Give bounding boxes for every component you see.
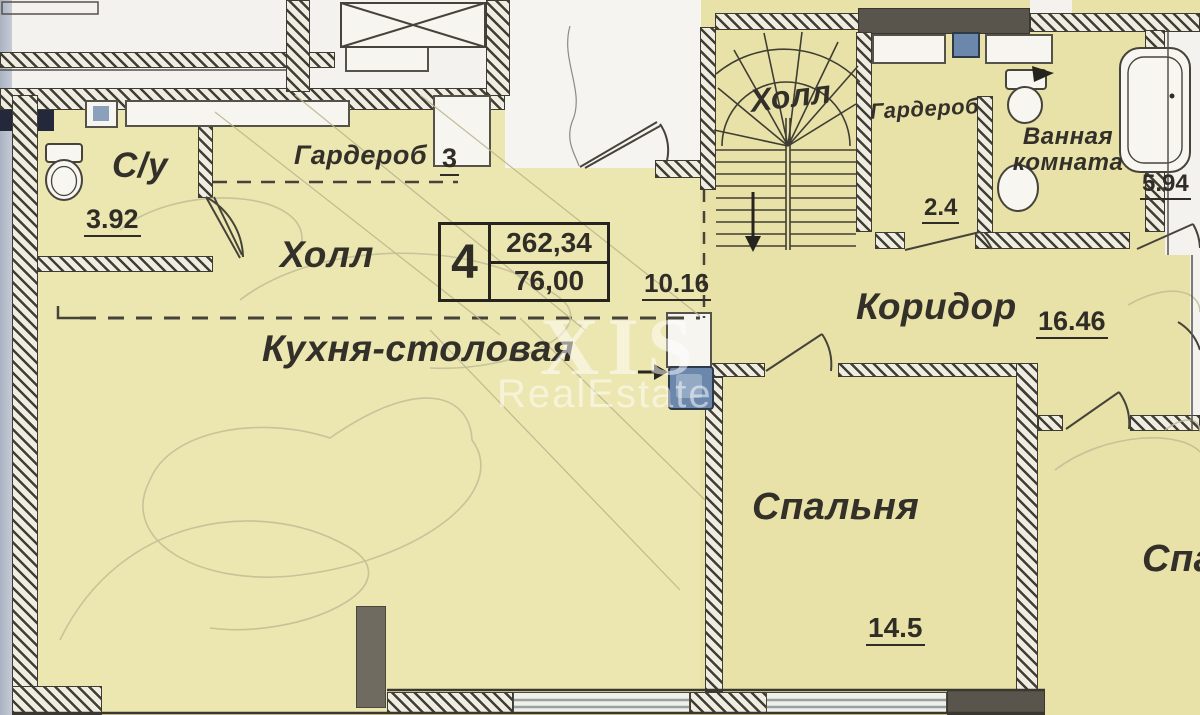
closet [985,34,1053,64]
wall [387,692,513,714]
unit-info-badge: 4 262,34 76,00 [438,222,610,302]
floor-plan: С/у 3.92 Гардероб 3 Холл 4 262,34 76,00 … [0,0,1200,715]
room-label-bathroom: Ванная комната [1000,124,1136,177]
wall [856,32,872,232]
window [513,692,690,714]
vent-shaft [666,312,712,368]
wall [975,232,1130,249]
room-label-hall: Холл [280,234,374,276]
wall [700,27,716,190]
room-label-bedroom-1: Спальня [752,486,919,529]
room-label-corridor: Коридор [856,286,1017,328]
wall [1030,13,1200,32]
counter [125,100,350,127]
stair-lobby [505,0,701,168]
area-wardrobe-hall: 3 [440,143,459,174]
room-label-wardrobe-hall: Гардероб [294,140,427,171]
area-su: 3.92 [84,204,141,235]
room-label-su: С/у [112,146,168,186]
wall [1038,415,1063,431]
wall [286,0,310,92]
washbasin-bowl [93,106,109,121]
wall [0,52,335,68]
wall [838,363,1034,377]
wall [690,692,768,714]
area-bedroom-1: 14.5 [866,612,925,644]
wall-outer-left [12,95,38,715]
area-corridor: 16.46 [1036,306,1108,337]
wall [715,13,860,30]
elevator-lobby-box [345,46,429,72]
elevator-shaft [340,2,486,48]
area-hall: 10.16 [642,268,711,299]
room-label-kitchen: Кухня-столовая [262,328,574,370]
wall [1016,363,1038,693]
wall [1145,30,1165,232]
room-label-bedroom-2: Спальня [1142,538,1200,581]
wall [12,686,102,715]
unit-rooms-count: 4 [441,225,491,299]
wall-beam [858,8,1030,34]
wall [1130,415,1200,431]
unit-total-area: 262,34 [491,225,607,264]
wall [705,377,723,692]
exterior-right-top [1165,30,1200,255]
window [766,692,947,714]
closet [872,34,946,64]
area-wardrobe-2: 2.4 [922,194,959,222]
wall [15,256,213,272]
column [947,690,1045,715]
wall [875,232,905,249]
wall [486,0,510,96]
exterior-right-mid [1190,255,1200,430]
column [356,606,386,708]
plumbing-riser-top [676,374,702,398]
washing-machine [952,32,980,58]
unit-living-area: 76,00 [491,264,607,300]
area-bathroom: 5.94 [1140,170,1191,198]
wall [655,160,705,178]
